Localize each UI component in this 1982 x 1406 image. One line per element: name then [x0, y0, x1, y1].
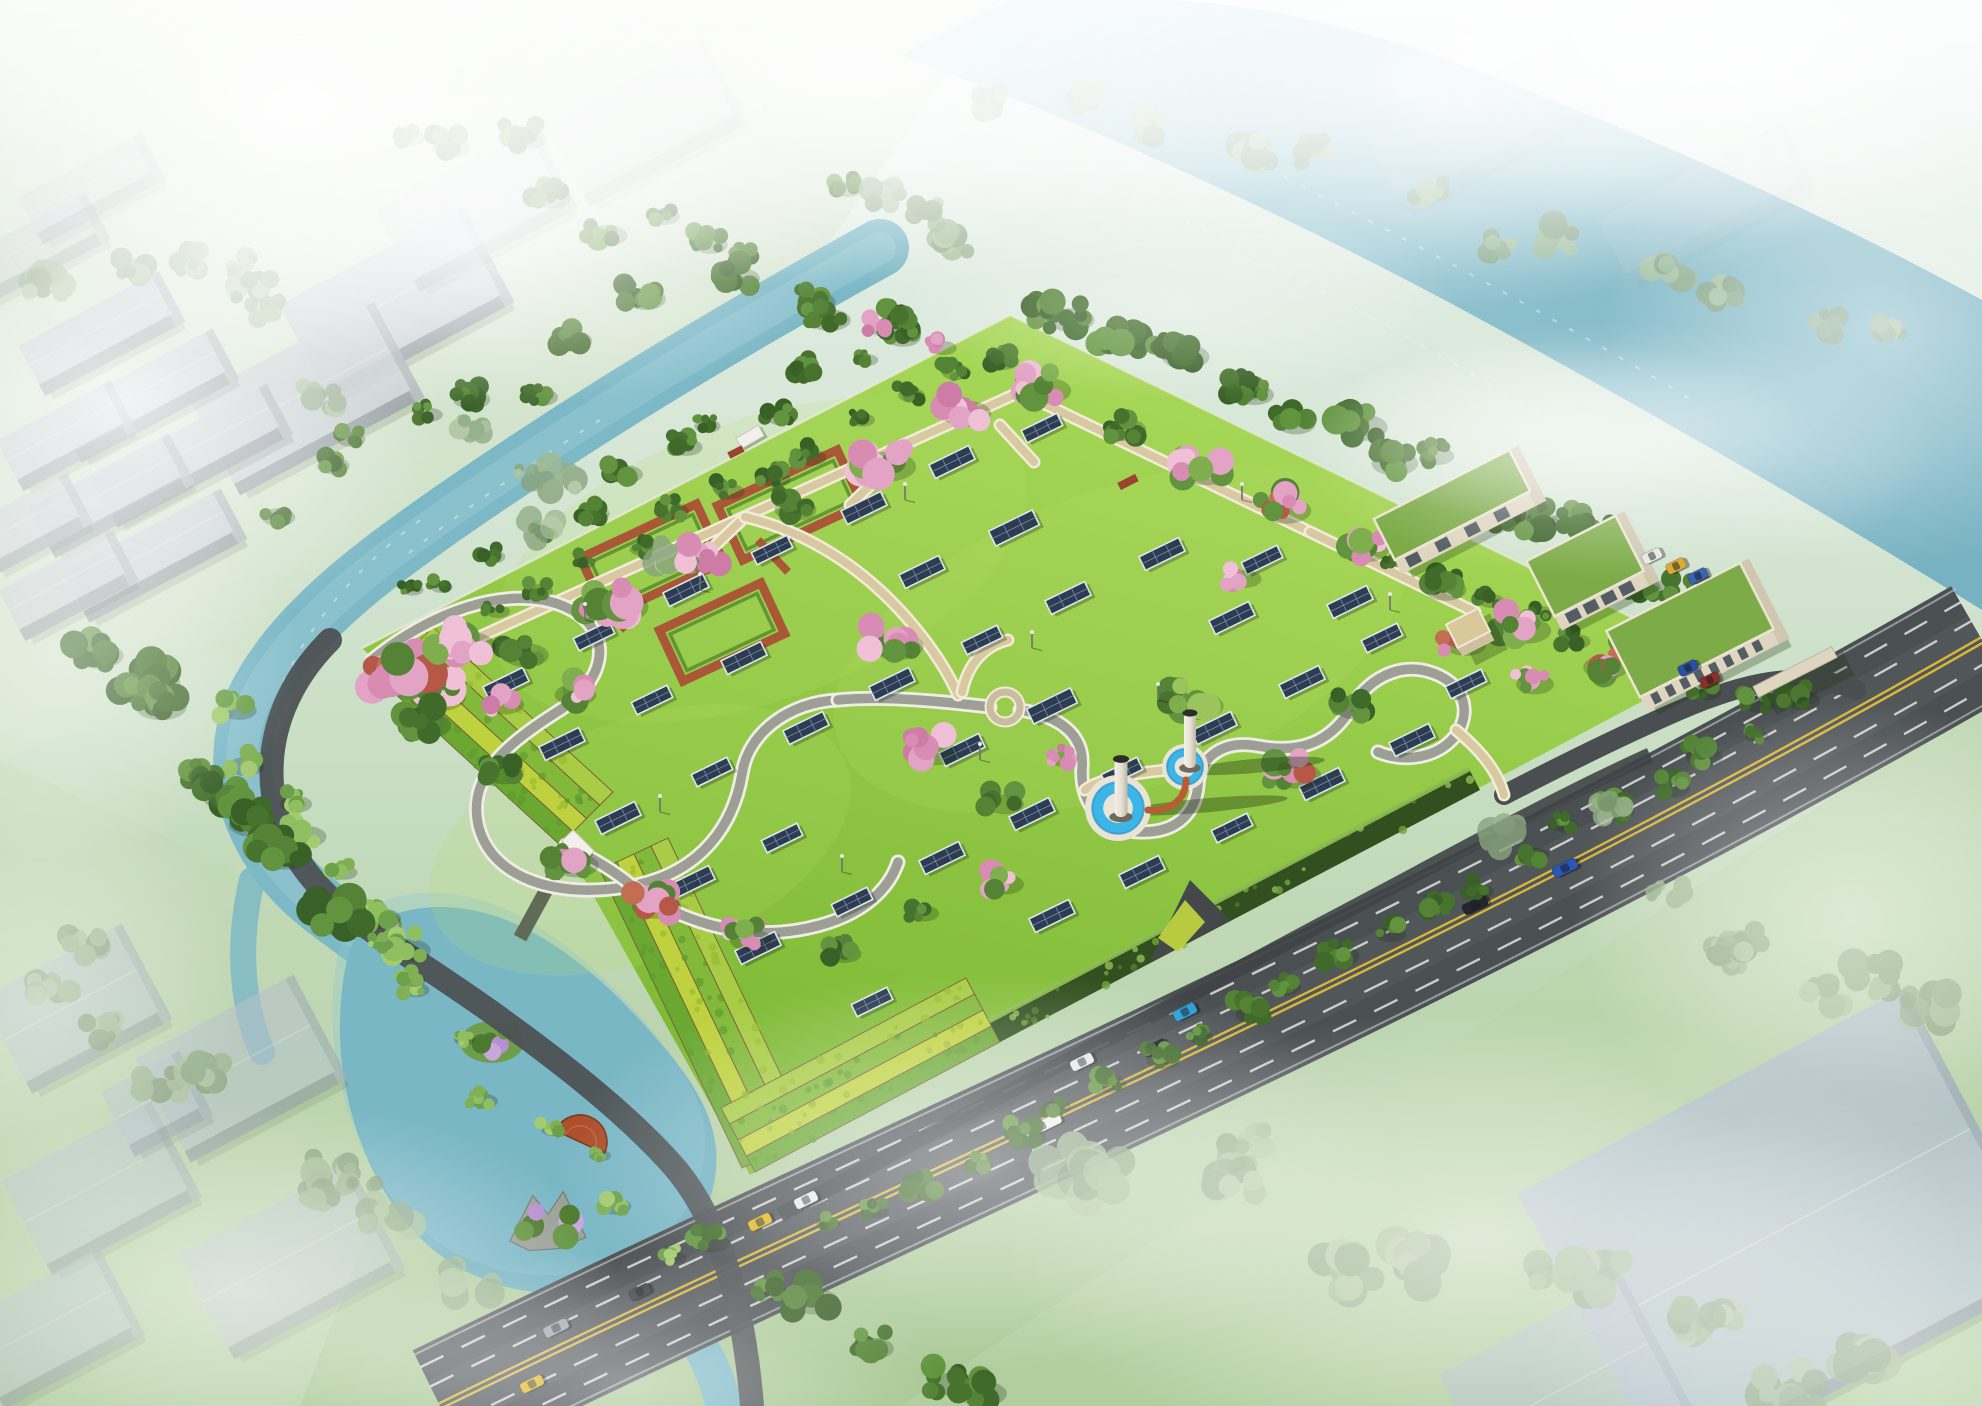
bed-texture [689, 989, 695, 995]
bed-texture [708, 943, 716, 951]
tree-canopy [1435, 630, 1451, 646]
tree-canopy [599, 455, 617, 473]
tree-canopy [971, 1370, 996, 1395]
pole-lamp [583, 602, 587, 606]
tree-canopy [968, 409, 990, 431]
tree-canopy [1172, 462, 1191, 481]
tree-canopy [1114, 408, 1130, 424]
tree-canopy [397, 986, 410, 999]
tree-canopy [412, 713, 428, 729]
wall-planting [1275, 886, 1283, 894]
bed-texture [530, 778, 537, 785]
tree-canopy [772, 489, 787, 504]
island-planting [472, 1034, 491, 1053]
tree-canopy [280, 784, 295, 799]
tree-canopy [413, 580, 422, 589]
tree-canopy [674, 510, 687, 523]
tree-canopy [1280, 408, 1302, 430]
tree-canopy [1549, 820, 1557, 828]
tree-canopy [1482, 590, 1495, 603]
tree-canopy [882, 639, 906, 663]
tower-top-opening [1183, 709, 1198, 716]
tree-canopy [1542, 613, 1549, 620]
tree-canopy [381, 642, 415, 676]
bed-texture [484, 716, 492, 724]
pole-lamp [1240, 482, 1244, 486]
tree-canopy [956, 366, 967, 377]
bed-texture [639, 950, 646, 957]
tree-canopy [880, 323, 890, 333]
wall-planting [1235, 902, 1240, 907]
tree-canopy [1475, 588, 1482, 595]
tree-canopy [534, 1117, 546, 1129]
tree-canopy [1376, 929, 1385, 938]
tree-canopy [1172, 678, 1188, 694]
bed-texture [575, 797, 582, 804]
tree-canopy [1007, 796, 1022, 811]
pole-lamp [978, 742, 982, 746]
vent-tower-column [1115, 758, 1128, 817]
tree-canopy [767, 465, 783, 481]
tree-canopy [513, 468, 523, 478]
tree-canopy [821, 948, 840, 967]
tree-canopy [289, 851, 306, 868]
tree-canopy [1425, 573, 1442, 590]
tree-canopy [697, 423, 707, 433]
bed-texture [648, 947, 654, 953]
tree-canopy [1466, 886, 1476, 896]
tree-canopy [640, 535, 654, 549]
tree-canopy [1126, 429, 1141, 444]
tree-canopy [483, 1099, 494, 1110]
tree-canopy [1737, 687, 1755, 705]
wall-planting [1302, 867, 1306, 871]
bed-texture [711, 957, 720, 966]
tree-canopy [397, 580, 406, 589]
bed-texture [507, 791, 516, 800]
tree-canopy [1336, 947, 1351, 962]
tree-canopy [842, 942, 859, 959]
pole-lamp [1156, 682, 1160, 686]
mist-cloud [100, 70, 860, 410]
pole-lamp [1388, 592, 1392, 596]
tree-canopy [857, 636, 883, 662]
tree-canopy [677, 532, 702, 557]
pole-lamp [840, 854, 844, 858]
tree-canopy [480, 604, 490, 614]
tree-canopy [1331, 687, 1346, 702]
tree-canopy [417, 988, 424, 995]
bed-texture [696, 998, 703, 1005]
tree-canopy [715, 482, 723, 490]
bed-texture [649, 973, 655, 979]
tree-canopy [561, 848, 587, 874]
tree-canopy [413, 949, 427, 963]
tree-canopy [1046, 749, 1057, 760]
tree-canopy [373, 942, 380, 949]
tree-canopy [1493, 813, 1515, 835]
tree-canopy [368, 941, 374, 947]
tree-canopy [519, 651, 537, 669]
tree-canopy [504, 762, 520, 778]
pole-lamp [698, 572, 702, 576]
tree-canopy [1510, 669, 1521, 680]
tree-canopy [1064, 746, 1075, 757]
tree-canopy [552, 1125, 565, 1138]
tree-canopy [477, 548, 490, 561]
tree-canopy [660, 494, 671, 505]
tree-canopy [692, 415, 700, 423]
tree-canopy [1479, 885, 1489, 895]
bed-texture [475, 672, 482, 679]
pole-lamp [903, 482, 907, 486]
tree-canopy [440, 580, 447, 587]
tree-cluster-green [397, 579, 424, 595]
tree-canopy [900, 381, 915, 396]
tree-canopy [653, 535, 670, 552]
tree-canopy [710, 414, 717, 421]
vent-tower-column [1184, 712, 1196, 768]
tree-canopy [540, 516, 563, 539]
bed-texture [675, 967, 680, 972]
tree-canopy [427, 573, 439, 585]
tree-canopy [669, 438, 687, 456]
tree-canopy [480, 761, 500, 781]
tree-canopy [1268, 980, 1280, 992]
tree-canopy [1603, 657, 1620, 674]
tree-canopy [617, 467, 637, 487]
tree-canopy [407, 925, 423, 941]
tree-canopy [469, 641, 493, 665]
tree-canopy [289, 800, 304, 815]
mist-cloud [1300, 340, 1820, 520]
bed-texture [467, 681, 474, 688]
tree-canopy [1419, 898, 1439, 918]
tree-canopy [861, 309, 878, 326]
tree-canopy [719, 491, 728, 500]
tree-canopy [804, 363, 822, 381]
tree-canopy [659, 897, 678, 916]
bed-texture [638, 859, 643, 864]
tower-top-opening [1113, 755, 1129, 763]
tree-canopy [578, 511, 594, 527]
wall-planting [1137, 954, 1145, 962]
bed-texture [707, 995, 712, 1000]
bed-texture [434, 628, 438, 632]
tree-canopy [522, 576, 536, 590]
bed-texture [738, 998, 743, 1003]
tree-canopy [621, 881, 645, 905]
bed-texture [628, 917, 634, 923]
tree-canopy [1263, 501, 1283, 521]
tree-canopy [856, 409, 866, 419]
tree-canopy [948, 406, 971, 429]
tree-canopy [984, 879, 1005, 900]
tree-canopy [800, 504, 812, 516]
bed-texture [473, 764, 478, 769]
bed-texture [517, 795, 526, 804]
wall-planting [1399, 826, 1407, 834]
tree-canopy [1488, 836, 1512, 860]
tree-canopy [574, 679, 595, 700]
bed-texture [475, 757, 479, 761]
tree-canopy [1520, 682, 1532, 694]
bed-texture [565, 798, 570, 803]
tree-canopy [1103, 429, 1119, 445]
tree-canopy [701, 415, 709, 423]
tree-cluster-green [478, 753, 524, 785]
wall-planting [1104, 971, 1109, 976]
tree-canopy [1348, 528, 1374, 554]
bed-texture [642, 944, 648, 950]
wall-planting [1130, 964, 1137, 971]
tree-canopy [755, 475, 766, 486]
tree-canopy [905, 733, 918, 746]
tree-canopy [1560, 812, 1570, 822]
tree-canopy [773, 410, 789, 426]
tree-canopy [699, 549, 715, 565]
tree-canopy [427, 643, 448, 664]
tree-canopy [495, 604, 504, 613]
bed-texture [695, 935, 700, 940]
wall-planting [1466, 776, 1474, 784]
tree-canopy [408, 971, 417, 980]
tree-canopy [654, 504, 668, 518]
tree-canopy [903, 911, 915, 923]
tree-canopy [687, 435, 697, 445]
tree-canopy [1188, 456, 1213, 481]
tree-canopy [916, 904, 926, 914]
tree-canopy [735, 919, 754, 938]
tree-canopy [261, 847, 285, 871]
tree-canopy [1390, 917, 1406, 933]
tree-canopy [458, 1030, 469, 1041]
tree-canopy [325, 863, 340, 878]
wall-planting [1285, 880, 1291, 886]
tree-canopy [834, 312, 847, 325]
wall-planting [1253, 885, 1257, 889]
tree-canopy [1439, 904, 1450, 915]
pole-lamp [1030, 630, 1034, 634]
bed-texture [681, 954, 688, 961]
tree-canopy [367, 932, 377, 942]
tree-canopy [1328, 938, 1339, 949]
tree-canopy [499, 639, 523, 663]
tree-canopy [958, 1386, 972, 1400]
bed-texture [630, 869, 636, 875]
tree-canopy [790, 448, 802, 460]
tree-canopy [895, 439, 913, 457]
tree-canopy [862, 324, 875, 337]
tree-canopy [975, 796, 995, 816]
tree-canopy [1251, 998, 1270, 1017]
tree-canopy [458, 414, 471, 427]
tree-canopy [1351, 689, 1371, 709]
bed-texture [694, 1007, 699, 1012]
tree-canopy [577, 557, 588, 568]
bed-texture [539, 773, 546, 780]
tree-canopy [540, 846, 563, 869]
wall-planting [1105, 961, 1113, 969]
pole-lamp [658, 794, 662, 798]
tree-canopy [481, 695, 500, 714]
tree-canopy [473, 1085, 485, 1097]
tree-canopy [801, 449, 810, 458]
tree-canopy [1169, 695, 1187, 713]
tree-canopy [1553, 811, 1561, 819]
tree-canopy [936, 382, 962, 408]
bed-texture [678, 936, 685, 943]
bed-texture [695, 978, 704, 987]
wall-planting [1118, 965, 1122, 969]
tree-canopy [1518, 844, 1534, 860]
bed-texture [470, 748, 477, 755]
tree-canopy [1569, 636, 1585, 652]
tree-canopy [1438, 643, 1451, 656]
tree-canopy [1060, 755, 1076, 771]
tree-canopy [1282, 495, 1296, 509]
tree-canopy [1553, 636, 1569, 652]
tree-canopy [859, 355, 872, 368]
tree-canopy [326, 897, 353, 924]
tree-canopy [537, 587, 546, 596]
rendering-stage [0, 0, 1982, 1406]
tree-canopy [1223, 561, 1238, 576]
aerial-park-rendering [0, 0, 1982, 1406]
tree-canopy [611, 578, 631, 598]
bed-texture [660, 930, 667, 937]
bed-texture [631, 865, 635, 869]
tree-canopy [1502, 616, 1519, 633]
bed-texture [532, 785, 537, 790]
bed-texture [544, 827, 550, 833]
tree-canopy [1314, 952, 1335, 973]
wall-planting [1152, 938, 1159, 945]
tree-canopy [537, 478, 563, 504]
tree-canopy [632, 544, 639, 551]
tree-canopy [568, 481, 582, 495]
